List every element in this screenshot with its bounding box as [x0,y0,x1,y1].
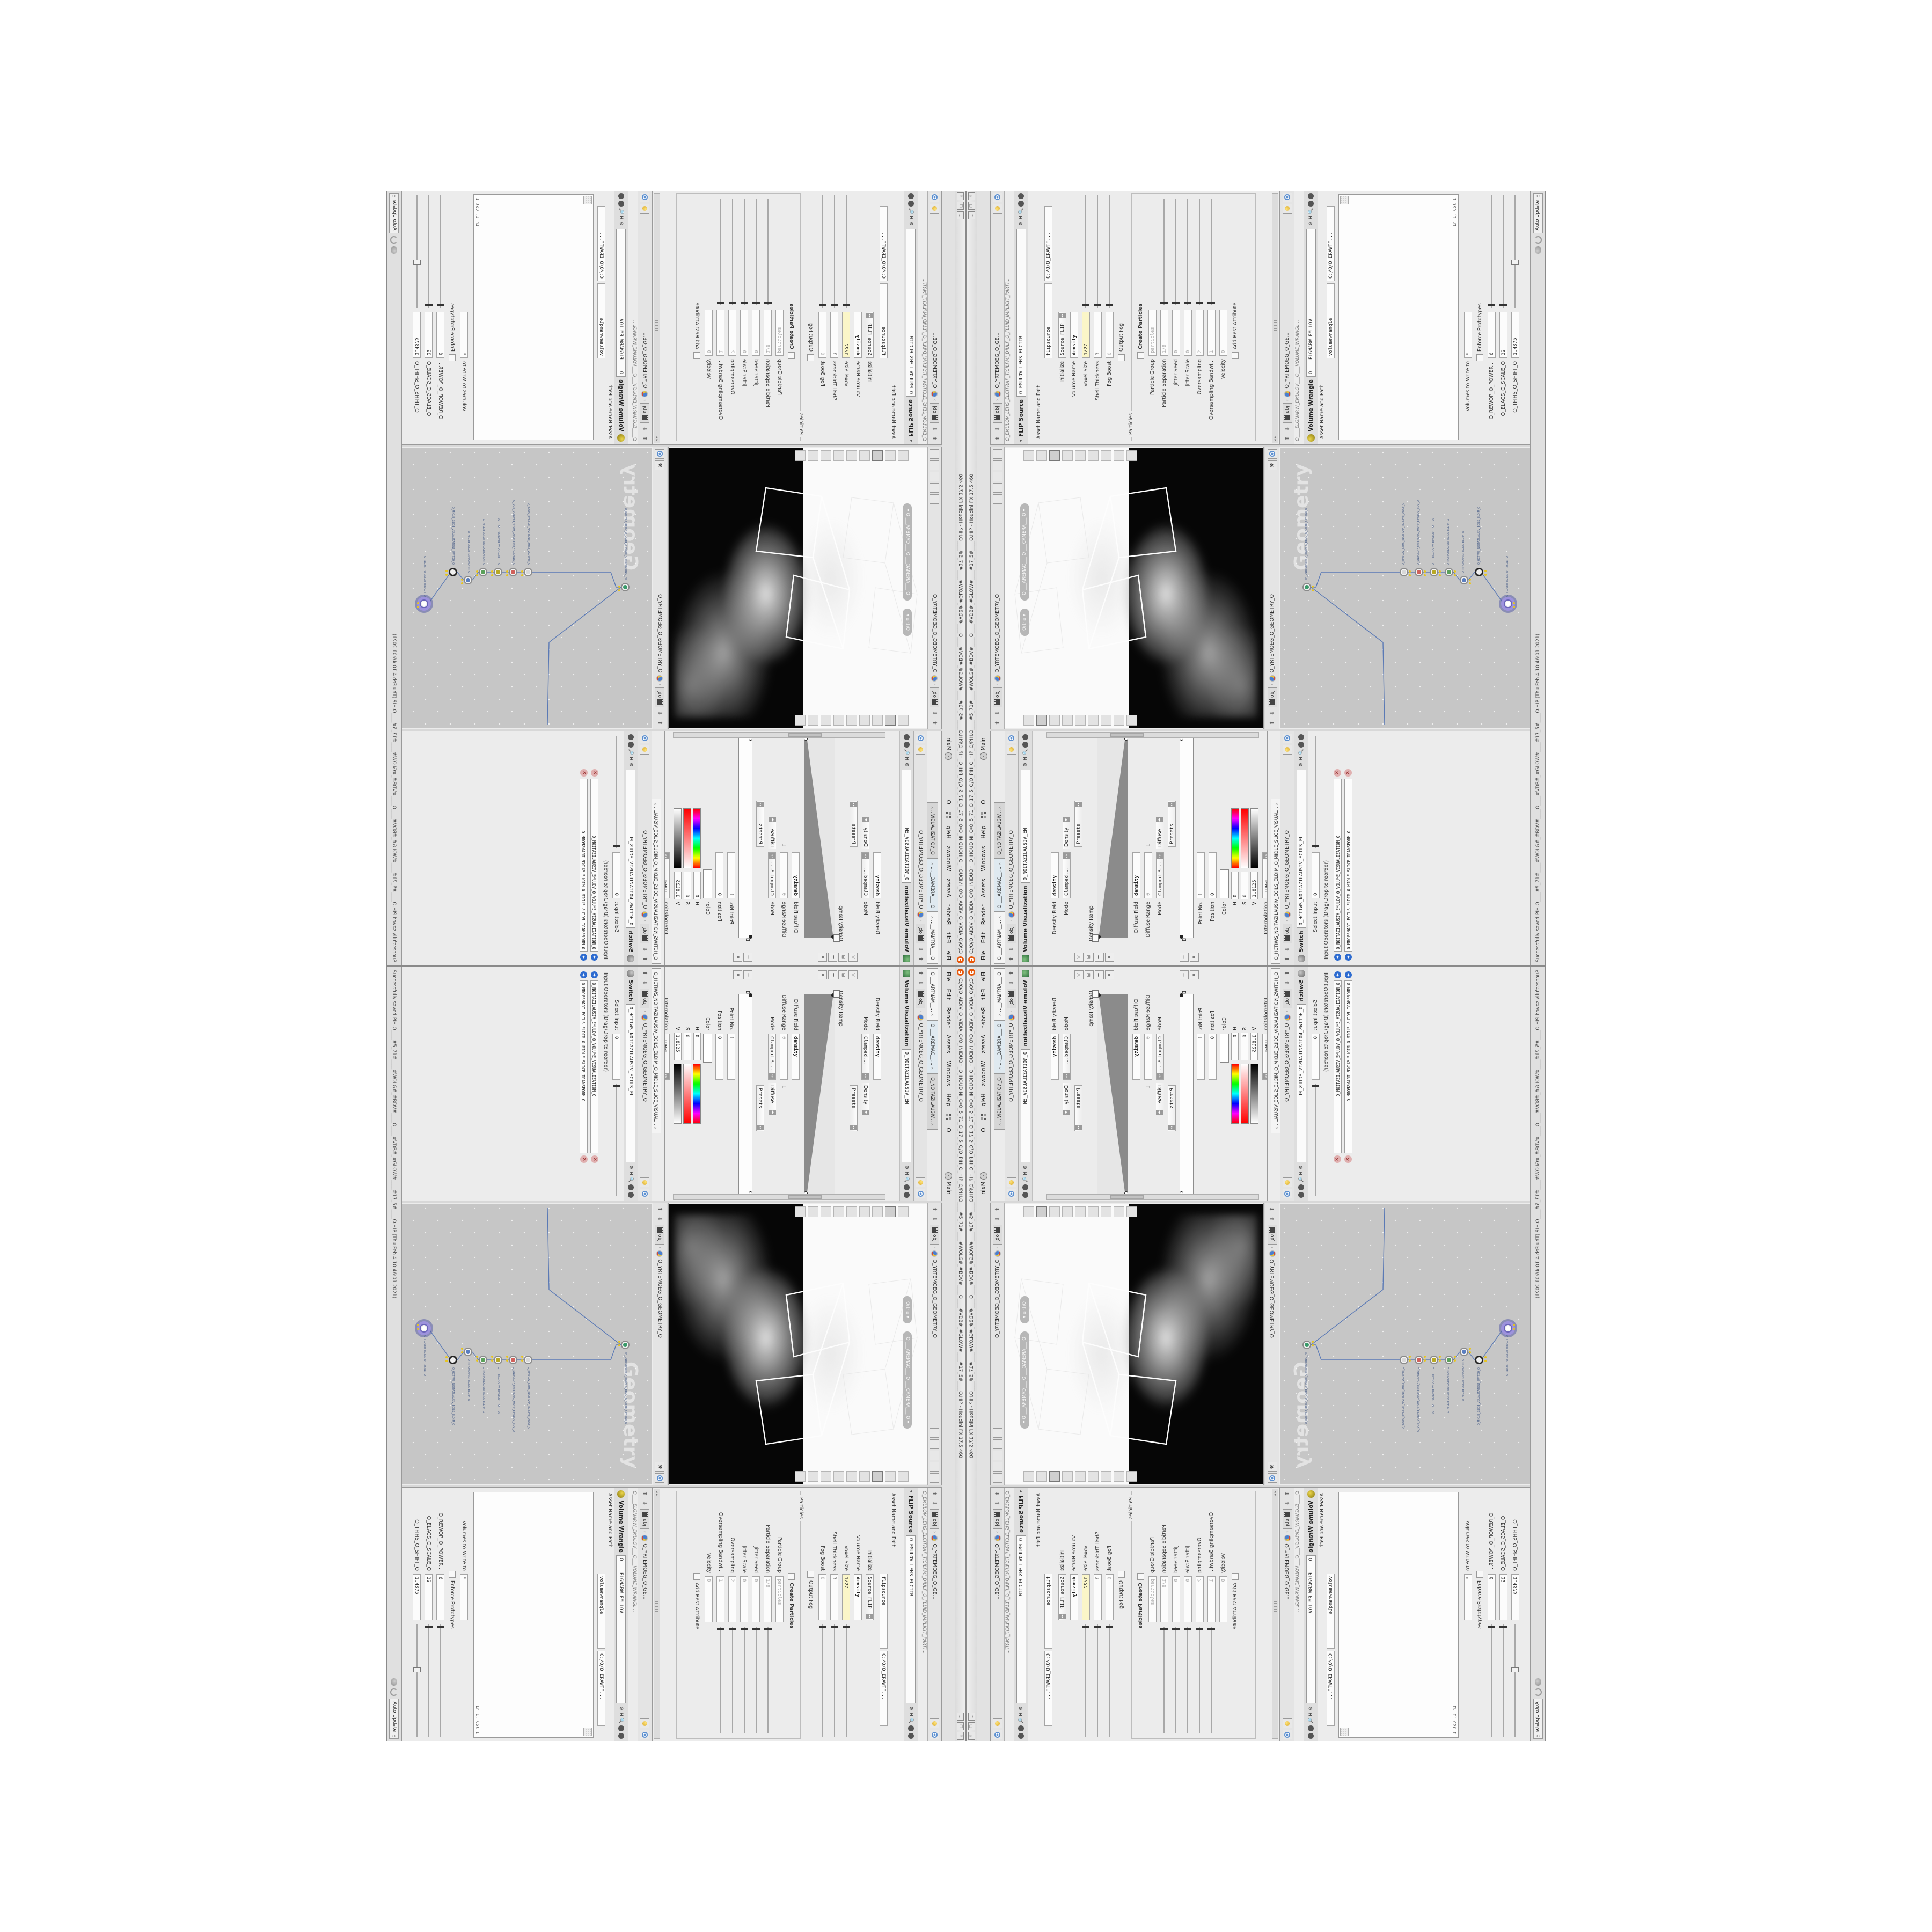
ramp-handle[interactable] [1092,934,1099,942]
param-field[interactable]: density [1132,852,1140,898]
nav-up-icon[interactable]: ⬆ [931,1490,939,1497]
gear-icon[interactable]: ⚙ [909,222,914,226]
anvil-icon[interactable]: ⚒ [1268,1462,1277,1472]
param-slider[interactable] [1184,1627,1191,1733]
view-tool-icon[interactable] [1049,715,1060,726]
nav-down-icon[interactable]: ⬇ [656,709,664,717]
diffuse-ramp-widget[interactable] [1180,994,1194,1195]
view-tool-icon[interactable] [898,1206,909,1217]
view-tool-icon[interactable] [1114,715,1124,726]
obj-context-chip[interactable]: obj [916,924,926,943]
param-field[interactable]: 1 [1207,1576,1216,1622]
close-button[interactable]: ✕ [957,192,964,200]
nav-down-icon[interactable]: ⬇ [641,1499,649,1507]
network-node[interactable]: O_NOITAZILAUSIV_ECILS_ELDIM_O [1445,1356,1453,1364]
param-slider[interactable] [1511,195,1519,308]
param-field[interactable]: 0 [716,1034,724,1080]
magnifier-icon[interactable]: 🔍 [1308,1718,1314,1724]
node-name-field[interactable]: O_HCTIWS_NOITAZILAUSIV_ECILS_EL [1297,1004,1306,1163]
asset-name-field[interactable]: flipsource [880,1574,888,1649]
input-operator-row[interactable]: ➔O_NOITAZILAUSIV_EMULOV_O_VOLUME_VISUALI… [589,967,600,1201]
nav-up-icon[interactable]: ⬆ [994,1490,1001,1497]
node-flags[interactable] [445,1356,448,1358]
param-field[interactable]: 0 [1219,1576,1227,1622]
param-field[interactable]: 6 [1488,312,1496,358]
param-slider[interactable] [1160,199,1168,305]
asset-name-field[interactable]: flipsource [1044,283,1052,358]
param-slider[interactable] [1488,195,1495,308]
nav-up-icon[interactable]: ⬆ [917,955,925,963]
menu-assets[interactable]: Assets [980,1035,987,1053]
display-option-icon[interactable] [1023,450,1034,461]
layout-grid-icon[interactable] [946,1114,952,1120]
nav-up-icon[interactable]: ⬆ [917,969,925,977]
pane-scrollbar[interactable] [1046,1194,1259,1200]
view-tool-icon[interactable] [821,715,831,726]
node-flags[interactable] [1312,1341,1314,1343]
auto-update-select[interactable]: Auto Update [390,1699,399,1739]
hue-slider[interactable] [693,1064,701,1124]
info-icon[interactable]: i [1018,1725,1024,1731]
node-name-field[interactable]: O_EMULOV_LEHS_ELCITR [906,1535,916,1703]
window-buttons[interactable]: _□✕ [968,1713,975,1741]
param-field[interactable]: density [1070,1574,1078,1620]
refresh-icon[interactable] [391,236,398,244]
desktop-selector[interactable]: Main [945,738,953,760]
reorder-arrow-icon[interactable]: ➔ [591,971,598,978]
help-icon[interactable]: ? [904,1192,910,1198]
val-field[interactable]: 1.8125 [674,1033,682,1060]
param-field[interactable]: 1/27 [843,1574,851,1620]
param-field[interactable]: 32 [1499,312,1507,358]
node-flags[interactable] [417,1324,419,1326]
input-operator-row[interactable]: ➔O_MROFSNART_ECILS_ELDIM_O_MIDLE_SLICE_T… [1343,967,1353,1201]
display-option-icon[interactable] [1088,450,1099,461]
param-field[interactable]: 0 [1209,1034,1217,1080]
help-icon[interactable]: ? [904,734,910,740]
tab-visualization[interactable]: O_NOITAZILAUSIV... [994,1073,1006,1130]
param-field[interactable]: 1/27 [1082,312,1090,358]
param-checkbox[interactable] [788,352,795,359]
pane-target-icon[interactable] [993,193,1002,202]
geometry-path[interactable]: O_YRTEMOEG_O_GEOMETRY_O [1284,830,1290,909]
ramp-add-icon[interactable]: ✛ [743,970,752,979]
display-option-icon[interactable] [859,450,870,461]
hue-slider[interactable] [693,808,701,868]
param-field[interactable]: 0 [716,852,724,898]
menu-file[interactable]: File [946,972,952,982]
geometry-path[interactable]: O_YRTEMOEG_O_GEOMETRY_O [1008,830,1014,909]
tab-camera[interactable]: O ___AREMAC__.... [994,1020,1006,1074]
operator-path-field[interactable]: O_MROFSNART_ECILS_ELDIM_O_MIDLE_SLICE_TR… [580,779,588,952]
param-field[interactable]: 0 [1172,310,1180,356]
param-checkbox[interactable] [1476,354,1483,361]
help-icon[interactable]: ? [908,193,914,199]
camera-binding-pill[interactable]: O ___AREMAC___ O ___CAMERA___ O ▾ [903,503,912,601]
pane-yellow-icon[interactable] [640,1718,650,1728]
obj-context-chip[interactable]: obj [655,687,665,707]
auto-update-select[interactable]: Auto Update [390,193,399,233]
display-option-icon[interactable] [872,450,883,461]
nav-down-icon[interactable]: ⬇ [1269,709,1276,717]
param-field[interactable]: 32 [425,312,433,358]
pane-target-icon[interactable] [640,193,650,202]
param-field[interactable]: 1 [728,1034,736,1080]
pane-yellow-icon[interactable] [1283,745,1292,755]
nav-up-icon[interactable]: ⬆ [931,719,939,727]
network-node[interactable]: O_EMULOV_LEHS_ELCITRAP_TICILPMI_DIULF_O [524,1356,532,1364]
view-tool-icon[interactable] [821,1206,831,1217]
param-field[interactable]: 1 [717,1576,725,1622]
obj-context-chip[interactable]: obj [655,1225,665,1245]
pane-yellow-icon[interactable] [916,745,926,755]
obj-context-chip[interactable]: obj [993,687,1002,707]
network-node[interactable]: an_CubeSphere O_EREHPS_EBUC_O_CUBE_SPHER… [1302,1341,1311,1349]
pane-target-icon[interactable] [655,1473,665,1483]
param-field[interactable]: 0 [819,312,827,358]
param-field[interactable]: 0 [1312,852,1320,898]
restore-button[interactable]: □ [957,202,964,210]
asset-path-field[interactable]: C:/O/O_ERAWTF... [1327,1651,1335,1726]
node-flags[interactable] [506,1356,508,1358]
param-field[interactable]: 3 [1094,1574,1102,1620]
node-flags[interactable] [445,574,448,576]
nav-down-icon[interactable]: ⬇ [994,425,1001,433]
window-buttons[interactable]: _□✕ [968,191,975,219]
node-flags[interactable] [491,1356,493,1358]
nav-down-icon[interactable]: ⬇ [994,1215,1001,1223]
display-option-icon[interactable] [795,450,806,461]
obj-context-chip[interactable]: obj [1268,1225,1277,1245]
nav-down-icon[interactable]: ⬇ [1008,946,1015,953]
param-field[interactable]: 0 [1209,852,1217,898]
param-checkbox[interactable] [788,1573,795,1580]
display-option-icon[interactable] [833,450,844,461]
param-field[interactable]: density [1070,312,1078,358]
collapse-triangle-icon[interactable]: ▾ [909,440,913,442]
memory-icon[interactable] [1535,1678,1541,1686]
nav-up-icon[interactable]: ⬆ [994,1205,1001,1213]
pane-target-icon[interactable] [1007,1189,1016,1198]
param-field[interactable]: Presets [850,1085,858,1131]
reorder-arrow-icon[interactable]: ➔ [1345,954,1352,961]
view-tool-icon[interactable] [1049,1206,1060,1217]
reorder-arrow-icon[interactable]: ➔ [581,971,588,978]
network-node[interactable]: O_EMULOV_LEHS_ELCITRAP_TICILPMI_DIULF_O [1400,568,1408,576]
param-field[interactable]: density [854,312,862,358]
nav-up-icon[interactable]: ⬆ [1284,955,1291,963]
param-field[interactable]: density [792,1034,800,1080]
param-slider[interactable] [413,1624,421,1737]
close-button[interactable]: ✕ [968,1732,975,1740]
gear-icon[interactable]: ⚙ [1023,1165,1028,1169]
asset-path-field[interactable]: C:/O/O_ERAWTF... [880,1651,888,1726]
reorder-arrow-icon[interactable]: ➔ [591,954,598,961]
title-bar[interactable]: C:/O/O_AIDIV_O_VIDIA_O/O_INIDUOH_O_HOUDI… [955,191,965,965]
input-operator-row[interactable]: ➔O_MROFSNART_ECILS_ELDIM_O_MIDLE_SLICE_T… [1343,731,1353,965]
ramp-handle[interactable] [833,990,840,998]
node-flags[interactable] [1484,574,1487,576]
param-field[interactable]: 3 [831,1574,839,1620]
geometry-path[interactable]: O_YRTEMOEG_O_GEOMETRY_O [1269,1259,1275,1338]
obj-context-chip[interactable]: obj [1283,989,1292,1008]
gear-icon[interactable]: ⚙ [909,1706,914,1710]
nav-up-icon[interactable]: ⬆ [641,435,649,442]
param-field[interactable]: Source FLIP [866,312,874,358]
display-option-icon[interactable] [898,450,909,461]
vex-code-editor[interactable]: Ln 1, Col 1 [473,1492,594,1738]
param-slider[interactable] [1196,1627,1203,1733]
pane-target-icon[interactable] [1268,1473,1277,1483]
node-flags[interactable] [1409,1356,1411,1358]
geometry-path[interactable]: O_YRTEMOEG_O_GEOMETRY_O [994,594,1000,673]
density-ramp-buttons[interactable]: ▽⊞✛⨯ [1074,970,1114,979]
vex-code-editor[interactable]: Ln 1, Col 1 [473,194,594,440]
nav-up-icon[interactable]: ⬆ [656,719,664,727]
display-option-icon[interactable] [795,1471,806,1482]
minimize-button[interactable]: _ [968,211,975,219]
param-slider[interactable] [1172,199,1180,305]
diffuse-ramp-widget[interactable] [738,994,752,1195]
view-tool-icon[interactable] [833,1206,844,1217]
network-node[interactable]: O_TLUSER_ECILS_O_RESULT_O [420,1324,428,1333]
refresh-icon[interactable] [391,1688,398,1696]
nav-up-icon[interactable]: ⬆ [641,955,649,963]
info-icon[interactable]: i [628,1184,634,1190]
param-field[interactable]: 1/27 [1082,1574,1090,1620]
ramp-expand-icon[interactable]: ⊞ [1085,970,1094,979]
param-field[interactable]: 1.4375 [1511,312,1519,358]
viewport-header-icon[interactable] [993,449,1002,459]
param-slider[interactable] [413,195,421,308]
menu-render[interactable]: Render [980,905,987,925]
param-field[interactable]: particles [776,1576,784,1622]
hue-field[interactable]: 0 [1231,1033,1239,1060]
param-field[interactable]: 0 [1106,312,1114,358]
network-canvas[interactable]: Geometry an_CubeSphere O_EREHPS_EBU [1280,1204,1530,1484]
viewport-header-icon[interactable] [930,449,940,459]
pane-yellow-icon[interactable] [993,1718,1002,1728]
pane-yellow-icon[interactable] [640,204,650,214]
window-buttons[interactable]: _□✕ [957,191,964,219]
param-field[interactable]: Clamped R... [1156,1034,1164,1080]
view-tool-icon[interactable] [1101,1206,1111,1217]
pane-target-icon[interactable] [993,1730,1002,1739]
title-bar[interactable]: C:/O/O_AIDIV_O_VIDIA_O/O_INIDUOH_O_HOUDI… [967,967,977,1741]
ramp-add-icon[interactable]: ✛ [1180,953,1189,962]
geometry-path[interactable]: O_YRTEMOEG_O_GEOMETRY_O [1284,1023,1290,1102]
param-slider[interactable] [1511,1624,1519,1737]
network-node[interactable]: O_MROFSNART_ECILS_ELDIM_O [1460,576,1468,584]
param-slider[interactable] [752,199,760,305]
input-operator-row[interactable]: ➔O_NOITAZILAUSIV_EMULOV_O_VOLUME_VISUALI… [589,731,600,965]
menu-edit[interactable]: Edit [946,932,952,943]
obj-context-chip[interactable]: obj [993,403,1002,423]
hue-field[interactable]: 0 [693,1033,701,1060]
param-field[interactable]: density [1051,1034,1059,1080]
view-tool-icon[interactable] [833,715,844,726]
display-option-icon[interactable] [859,1471,870,1482]
title-bar[interactable]: C:/O/O_AIDIV_O_VIDIA_O/O_INIDUOH_O_HOUDI… [967,191,977,965]
view-tool-icon[interactable] [1075,1206,1086,1217]
param-field[interactable]: Presets [1074,1085,1082,1131]
param-field[interactable]: Clamped... [1063,852,1071,898]
density-ramp-widget[interactable] [1097,994,1128,1195]
asset-name-field[interactable]: flipsource [880,283,888,358]
node-name-field[interactable]: O_HCTIWS_NOITAZILAUSIV_ECILS_EL [1297,770,1306,928]
memory-icon[interactable] [1535,246,1541,254]
ramp-collapse-icon[interactable]: ▽ [1074,953,1084,962]
param-field[interactable]: density [874,1034,882,1080]
pane-target-icon[interactable] [1283,1189,1292,1198]
menu-render[interactable]: Render [946,1007,952,1027]
info-icon[interactable]: i [618,1725,624,1731]
param-field[interactable]: 1 [1197,852,1205,898]
sat-slider[interactable] [1241,1064,1249,1124]
menu-edit[interactable]: Edit [980,932,987,943]
sat-slider[interactable] [684,808,692,868]
network-node[interactable]: O_SNOGLOP_YRTEMOEG_MORF_EMULOV_BDV_O [1415,1356,1423,1364]
nav-down-icon[interactable]: ⬇ [641,425,649,433]
val-slider[interactable] [674,808,682,868]
param-field[interactable]: 0 [1312,1034,1320,1080]
menu-help[interactable]: Help [946,1093,952,1106]
geometry-path[interactable]: O_YRTEMOEG_O_GEOMETRY_O [918,830,924,909]
node-flags[interactable] [506,574,508,576]
display-option-icon[interactable] [846,1471,857,1482]
param-slider[interactable] [1094,195,1101,308]
view-tool-icon[interactable] [1062,715,1073,726]
sat-field[interactable]: 0 [1241,872,1248,899]
layout-grid-icon[interactable] [981,812,986,818]
gear-icon[interactable]: ⚙ [1308,1706,1314,1710]
density-ramp-buttons[interactable]: ▽⊞✛⨯ [818,970,858,979]
param-field[interactable]: Clamped... [862,1034,870,1080]
param-field[interactable]: density [854,1574,862,1620]
param-field[interactable]: 1/27 [843,312,851,358]
param-field[interactable]: density [792,852,800,898]
param-field[interactable]: 0 [780,1034,788,1080]
magnifier-icon[interactable]: 🔍 [909,1718,914,1724]
camera-binding-pill[interactable]: O ___AREMAC___ O ___CAMERA___ O ▾ [1020,503,1029,601]
view-tool-icon[interactable] [1126,1206,1137,1217]
param-slider[interactable] [819,195,826,308]
param-slider[interactable] [843,1624,850,1737]
pane-yellow-icon[interactable] [1007,745,1016,755]
node-flags[interactable] [461,1348,463,1350]
nav-down-icon[interactable]: ⬇ [931,1215,939,1223]
network-canvas[interactable]: Geometry an_CubeSphere O_EREHPS_EBU [402,448,652,728]
tab-mantra[interactable]: O ___ARTNAM__... [994,968,1006,1020]
view-tool-icon[interactable] [1023,1206,1034,1217]
viewport-header-icon[interactable] [930,1428,940,1438]
viewport-header-icon[interactable] [993,494,1002,504]
remove-icon[interactable]: ✕ [1344,1155,1352,1163]
pane-yellow-icon[interactable] [640,745,650,755]
nav-up-icon[interactable]: ⬆ [641,1490,649,1497]
nav-down-icon[interactable]: ⬇ [1284,979,1291,986]
node-flags[interactable] [461,582,463,584]
network-node[interactable]: O____ELGNARW_EMULOV___O___02 [1430,1356,1438,1364]
param-slider[interactable] [1184,199,1191,305]
camera-binding-pill[interactable]: O ___AREMAC___ O ___CAMERA___ O ▾ [903,1331,912,1429]
view-tool-icon[interactable] [872,715,883,726]
remove-icon[interactable]: ✕ [1344,769,1352,777]
collapse-triangle-icon[interactable]: ▾ [909,1490,913,1492]
info-icon[interactable]: i [908,1725,914,1731]
param-slider[interactable] [1094,1624,1101,1737]
network-node[interactable]: O_MROFSNART_ECILS_ELDIM_O [1460,1348,1468,1356]
network-node[interactable]: O_EMULOV_LEHS_ELCITRAP_TICILPMI_DIULF_O [524,568,532,576]
obj-context-chip[interactable]: obj [1007,924,1016,943]
magnifier-icon[interactable]: 🔍 [1019,1718,1024,1724]
nav-down-icon[interactable]: ⬇ [994,709,1001,717]
param-field[interactable]: 6 [1488,1574,1496,1620]
param-checkbox[interactable] [1232,352,1239,359]
view-tool-icon[interactable] [1036,715,1047,726]
node-flags[interactable] [1409,574,1411,576]
magnifier-icon[interactable]: 🔍 [909,208,914,214]
magnifier-icon[interactable]: 🔍 [619,208,624,214]
tab-visualization[interactable]: O_NOITAZILAUSIV... [926,1073,938,1130]
ramp-delete-icon[interactable]: ⨯ [1105,970,1114,979]
asset-name-field[interactable]: volumewrangle [1327,1574,1335,1649]
ramp-add-icon[interactable]: ✛ [828,953,837,962]
magnifier-icon[interactable]: 🔍 [628,749,634,755]
pane-target-icon[interactable] [1283,734,1292,743]
geometry-path[interactable]: O_YRTEMOEG_O_GE... [994,1543,1000,1599]
node-flags[interactable] [1439,1356,1441,1358]
diffuse-ramp-widget[interactable] [1180,737,1194,938]
param-slider[interactable] [752,1627,760,1733]
help-icon[interactable]: ? [1308,1733,1314,1739]
param-checkbox[interactable] [449,354,456,361]
close-button[interactable]: ✕ [957,1732,964,1740]
param-field[interactable]: 0 [1219,310,1227,356]
menu-windows[interactable]: Windows [980,1060,987,1086]
param-field[interactable]: Presets [1168,1085,1176,1131]
param-field[interactable]: 1.4375 [413,1574,421,1620]
reorder-arrow-icon[interactable]: ➔ [1345,971,1352,978]
pane-target-icon[interactable] [1007,734,1016,743]
pane-target-icon[interactable] [640,734,650,743]
magnifier-icon[interactable]: 🔍 [1023,749,1028,755]
param-slider[interactable] [1499,1624,1507,1737]
viewport-header-icon[interactable] [930,1451,940,1460]
operator-path-field[interactable]: O_NOITAZILAUSIV_EMULOV_O_VOLUME_VISUALIZ… [1334,779,1342,952]
display-option-icon[interactable] [872,1471,883,1482]
asset-path-field[interactable]: C:/O/O_ERAWTF... [1044,1651,1052,1726]
help-icon[interactable]: ? [1018,1733,1024,1739]
minimize-button[interactable]: _ [968,1713,975,1721]
network-node[interactable]: O_EMULOV_LEHS_ELCITRAP_TICILPMI_DIULF_O [1400,1356,1408,1364]
display-option-icon[interactable] [1049,450,1060,461]
param-field[interactable]: 1/9 [1160,310,1168,356]
val-field[interactable]: 1.8125 [674,872,682,899]
pane-h-scrollbar[interactable]: ◂ ▸ [654,193,660,443]
param-field[interactable]: 1 [728,852,736,898]
ramp-expand-icon[interactable]: ⊞ [838,970,847,979]
viewport-header-icon[interactable] [930,460,940,470]
param-slider[interactable] [1312,1084,1319,1196]
network-node[interactable]: O_NOITAZILAUSIV_ECILS_ELDIM_O [479,1356,487,1364]
network-node[interactable]: an_CubeSphere O_EREHPS_EBUC_O_CUBE_SPHER… [621,583,630,591]
display-option-icon[interactable] [1062,1471,1073,1482]
param-checkbox[interactable] [1118,354,1125,361]
node-flags[interactable] [491,574,493,576]
viewport-header-icon[interactable] [930,1473,940,1483]
view-tool-icon[interactable] [872,1206,883,1217]
